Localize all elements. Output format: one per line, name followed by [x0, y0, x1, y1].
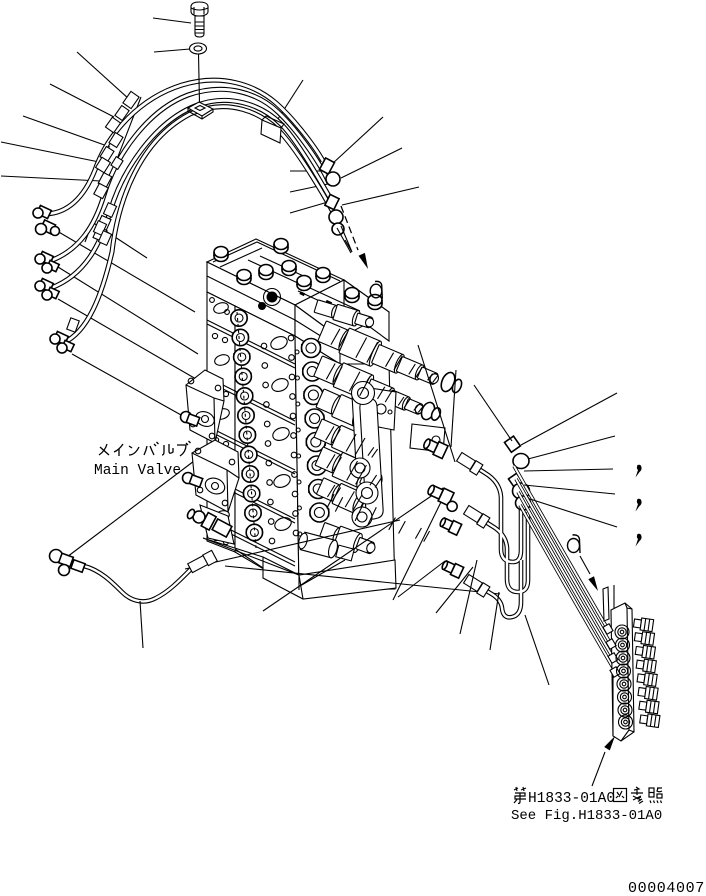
svg-text:See Fig.H1833-01A0: See Fig.H1833-01A0 — [511, 808, 662, 824]
svg-text:Main Valve: Main Valve — [94, 463, 181, 479]
svg-text:H1833-01A0: H1833-01A0 — [528, 791, 615, 807]
svg-text:00004007: 00004007 — [628, 880, 705, 896]
